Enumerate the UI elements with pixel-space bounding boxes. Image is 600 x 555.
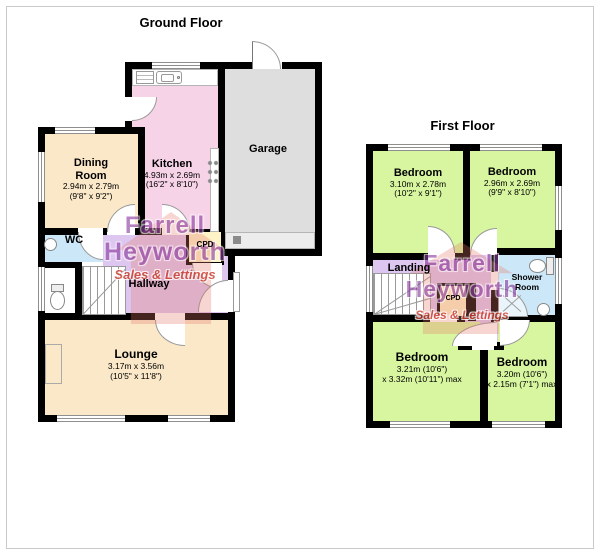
garage-door-handle-icon xyxy=(233,236,241,244)
bedroom-tl-label: Bedroom 3.10m x 2.78m (10'2" x 9'1") xyxy=(375,167,461,199)
first-cpd-text: CPD xyxy=(437,295,469,303)
front-door-leaf xyxy=(233,272,240,312)
bedroom-tl-name: Bedroom xyxy=(375,167,461,180)
dining-label: Dining Room 2.94m x 2.79m (9'8" x 9'2") xyxy=(50,157,132,202)
garage-label: Garage xyxy=(237,143,299,156)
dining-window-left xyxy=(38,152,45,202)
kitchen-dims-ft: (16'2" x 8'10") xyxy=(128,180,216,190)
lounge-label: Lounge 3.17m x 3.56m (10'5" x 11'8") xyxy=(88,348,184,381)
first-floor-title: First Floor xyxy=(385,118,540,133)
ground-cpd-label: CPD xyxy=(186,240,224,249)
ground-cpd-text: CPD xyxy=(186,240,224,249)
ff-window-bottom-left xyxy=(390,421,450,428)
landing-label: Landing xyxy=(378,262,440,275)
ground-floor-title: Ground Floor xyxy=(100,15,262,30)
first-stairs xyxy=(373,273,431,315)
ff-window-landing xyxy=(366,266,373,312)
floorplan-canvas: Ground Floor CPD xyxy=(0,0,600,555)
kitchen-label: Kitchen 4.93m x 2.69m (16'2" x 8'10") xyxy=(128,158,216,190)
ff-window-shower xyxy=(555,258,562,304)
shower-room-label: Shower Room xyxy=(502,273,552,293)
toilet-bowl-icon xyxy=(50,291,65,310)
kitchen-window xyxy=(152,62,200,69)
wc-basin-icon xyxy=(44,238,57,251)
kitchen-name: Kitchen xyxy=(128,158,216,171)
wc-label: WC xyxy=(58,234,90,247)
bedroom-br-label: Bedroom 3.20m (10'6") x 2.15m (7'1") max xyxy=(482,357,562,390)
garage-wall-right xyxy=(315,62,322,256)
wc-name: WC xyxy=(58,234,90,247)
ff-bedrooms-divider xyxy=(463,144,470,260)
bedroom-bl-label: Bedroom 3.21m (10'6") x 3.32m (10'11") m… xyxy=(366,351,478,384)
landing-name: Landing xyxy=(378,262,440,275)
first-stairs-diagonal-2 xyxy=(374,297,431,314)
dining-dims-ft: (9'8" x 9'2") xyxy=(50,192,132,202)
first-stairs-diagonal-1 xyxy=(374,275,431,315)
sink-tap xyxy=(177,76,180,79)
hallway-name: Hallway xyxy=(113,278,185,291)
ff-window-top-left xyxy=(388,144,450,151)
bedroom-br-dims-2: x 2.15m (7'1") max xyxy=(482,380,562,390)
ff-toilet-bowl-icon xyxy=(529,259,546,273)
lounge-window-2 xyxy=(168,415,210,422)
ff-window-bedroom-tr xyxy=(555,186,562,230)
ff-window-bottom-right xyxy=(492,421,545,428)
sink-basin xyxy=(161,74,174,82)
kitchen-side-door-opening xyxy=(125,97,132,121)
ff-basin-icon xyxy=(537,303,550,316)
bedroom-tr-label: Bedroom 2.96m x 2.69m (9'9" x 8'10") xyxy=(468,166,556,198)
fireplace-icon xyxy=(45,344,62,384)
ff-window-top-right xyxy=(480,144,542,151)
hallway-label: Hallway xyxy=(113,278,185,291)
bedroom-tr-dims-ft: (9'9" x 8'10") xyxy=(468,188,556,198)
garage-room xyxy=(222,66,318,252)
bedroom-bl-name: Bedroom xyxy=(366,351,478,365)
lounge-window-1 xyxy=(57,415,125,422)
bedroom-tl-dims-ft: (10'2" x 9'1") xyxy=(375,189,461,199)
draining-board-icon xyxy=(136,71,154,84)
wc-window xyxy=(38,267,45,311)
stairs-wall xyxy=(75,262,82,317)
bedroom-tr-name: Bedroom xyxy=(468,166,556,179)
garage-name: Garage xyxy=(237,143,299,156)
stairs-diagonal xyxy=(83,267,126,314)
kitchen-sink-icon xyxy=(156,71,182,84)
dining-window-top xyxy=(55,127,95,134)
bedroom-bl-dims-2: x 3.32m (10'11") max xyxy=(366,375,478,385)
first-cpd-label: CPD xyxy=(437,295,469,303)
shower-room-name: Shower Room xyxy=(510,273,544,293)
dining-name: Dining Room xyxy=(62,157,120,182)
lounge-name: Lounge xyxy=(88,348,184,362)
lounge-dims-ft: (10'5" x 11'8") xyxy=(88,372,184,382)
